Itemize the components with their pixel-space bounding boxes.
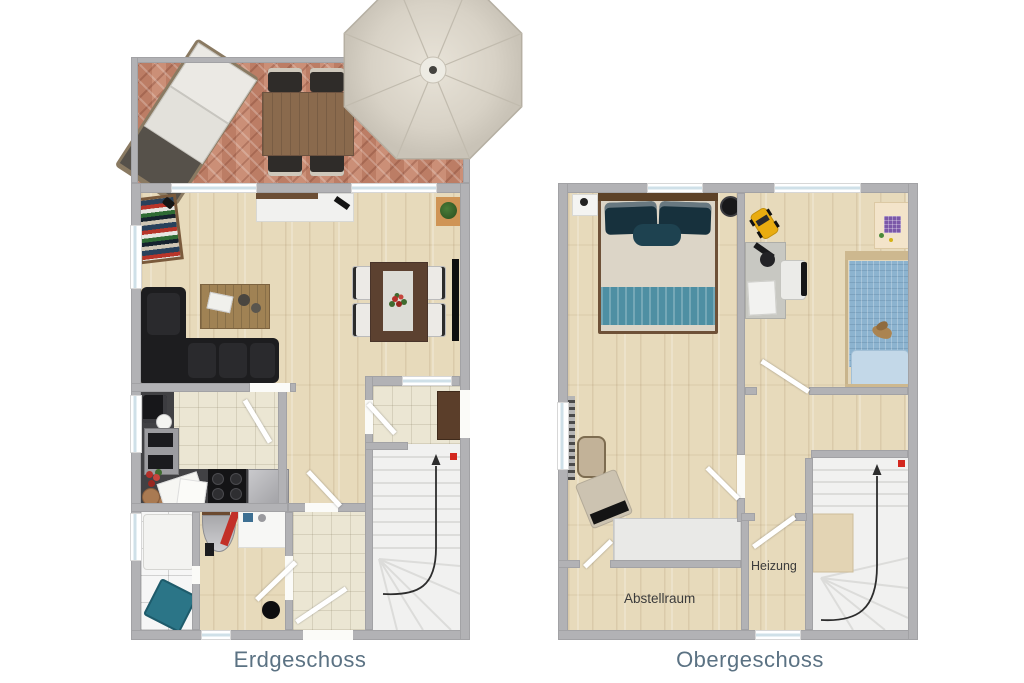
- wall: [795, 513, 807, 521]
- burner: [230, 488, 242, 500]
- wall: [811, 450, 908, 458]
- window: [131, 514, 141, 560]
- wall: [278, 383, 287, 512]
- oven-door: [148, 433, 173, 447]
- wall: [558, 560, 580, 568]
- wall: [745, 387, 757, 395]
- wall: [741, 520, 749, 630]
- terrace-door-window: [172, 184, 256, 192]
- robot-vacuum: [262, 601, 280, 619]
- kitchen-flowers: [146, 471, 153, 478]
- single-bed-pillow: [851, 350, 909, 388]
- terrace-chair: [268, 68, 302, 92]
- coffee-table-bowl: [238, 294, 250, 306]
- window: [403, 377, 451, 385]
- bed-headboard: [598, 192, 718, 201]
- desk-papers: [747, 280, 777, 315]
- coffee-table-bowl: [251, 303, 261, 313]
- staircase-upper: [813, 458, 908, 630]
- bed-blanket: [601, 287, 715, 325]
- wall: [558, 630, 918, 640]
- stairs-red-marker: [450, 453, 457, 460]
- room-label-storage: Abstellraum: [624, 591, 695, 606]
- stove: [208, 469, 246, 503]
- washing-machine: [143, 514, 194, 570]
- toy-piece: [879, 233, 884, 238]
- wall: [131, 630, 470, 640]
- wall: [908, 183, 918, 640]
- sofa-cushion: [147, 293, 180, 335]
- wall: [805, 458, 813, 630]
- basket: [577, 436, 606, 478]
- door-opening: [737, 455, 745, 498]
- upper-floor-label: Obergeschoss: [645, 647, 855, 673]
- toy-piece: [889, 238, 893, 242]
- window: [202, 631, 230, 639]
- window: [131, 396, 141, 452]
- ground-floor-label: Erdgeschoss: [195, 647, 405, 673]
- bath-item: [205, 543, 214, 556]
- wall: [558, 183, 918, 193]
- floorplan-canvas: Erdgeschoss: [0, 0, 1024, 683]
- wall: [610, 560, 741, 568]
- room-label-heating: Heizung: [751, 559, 797, 573]
- wall: [365, 442, 408, 450]
- window: [131, 226, 141, 288]
- wall: [737, 193, 745, 455]
- sideboard-upper: [613, 518, 742, 565]
- flower-centerpiece: [388, 292, 408, 312]
- sofa-cushion: [188, 343, 216, 378]
- toy-blocks: [884, 216, 901, 233]
- wall: [741, 513, 755, 521]
- desk-chair-back: [801, 262, 807, 296]
- faucet: [258, 514, 266, 522]
- parasol: [332, 0, 532, 176]
- doormat: [437, 391, 461, 440]
- desk-lamp: [760, 252, 775, 267]
- wall: [290, 383, 296, 392]
- bath-accessory: [243, 513, 253, 522]
- sideboard-top: [256, 193, 318, 199]
- toy-car-window: [756, 215, 770, 227]
- burner: [212, 473, 224, 485]
- wall: [809, 387, 908, 395]
- radiator: [568, 396, 575, 480]
- window: [775, 184, 860, 192]
- wall: [131, 503, 288, 512]
- single-bed-headboard: [845, 251, 912, 260]
- tv: [452, 259, 459, 341]
- plant: [440, 202, 457, 219]
- throw-pillow: [633, 224, 681, 246]
- door-opening: [305, 503, 338, 512]
- staircase-ground: [373, 444, 460, 630]
- wall: [131, 383, 250, 392]
- oven-door: [148, 455, 173, 469]
- nightstand-lamp: [580, 198, 588, 206]
- window: [756, 631, 800, 639]
- sofa-cushion: [219, 343, 247, 378]
- wall: [131, 57, 138, 183]
- window: [558, 403, 568, 469]
- burner: [230, 473, 242, 485]
- window: [648, 184, 702, 192]
- burner: [212, 488, 224, 500]
- terrace-door-window: [352, 184, 436, 192]
- sofa-cushion: [250, 343, 275, 378]
- door-opening: [250, 383, 290, 392]
- side-door-opening: [460, 390, 470, 438]
- door-opening: [192, 566, 200, 584]
- front-door-opening: [303, 630, 353, 640]
- stairs-red-marker: [898, 460, 905, 467]
